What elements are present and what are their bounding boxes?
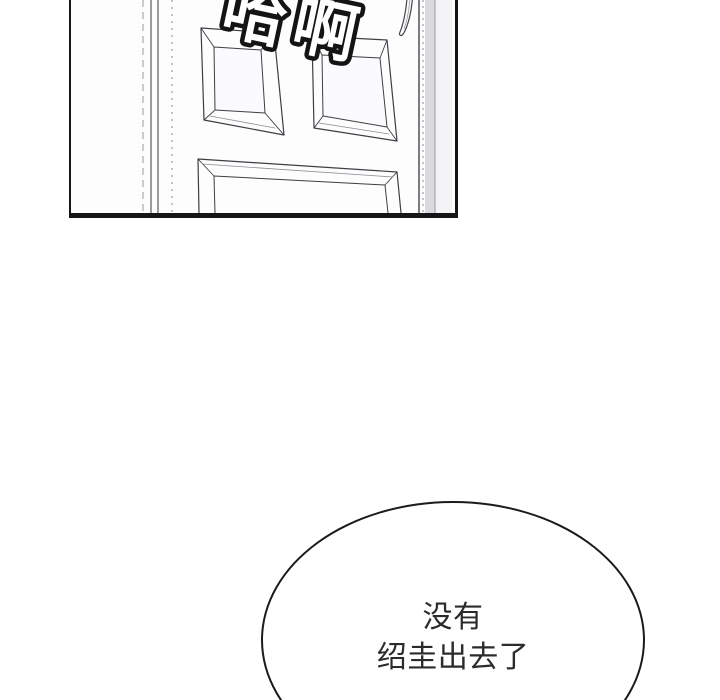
door-panel-lower: [198, 159, 401, 213]
comic-page: 哈啊 没有 绍圭出去了: [0, 0, 720, 700]
speech-text: 没有 绍圭出去了: [263, 598, 643, 678]
door-panel-upper-left: [201, 28, 284, 135]
door-panel-upper-right: [312, 36, 397, 141]
comic-panel: 哈啊: [69, 0, 458, 218]
door-edge-shading: [419, 0, 452, 213]
speech-bubble: 没有 绍圭出去了: [261, 501, 645, 700]
speech-line-2: 绍圭出去了: [263, 638, 643, 678]
speech-line-1: 没有: [263, 598, 643, 638]
door-frame-lines: [143, 0, 172, 213]
door-illustration: [71, 0, 455, 213]
door-handle-icon: [400, 0, 413, 35]
